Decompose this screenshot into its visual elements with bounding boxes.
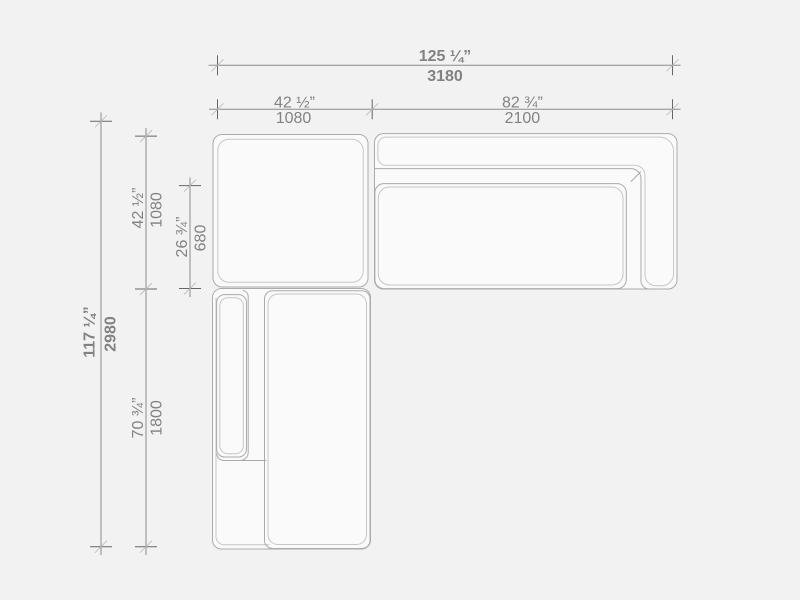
- svg-text:1080: 1080: [276, 110, 312, 127]
- svg-text:1080: 1080: [149, 192, 166, 228]
- svg-text:117 ¼”: 117 ¼”: [82, 306, 99, 358]
- svg-text:2100: 2100: [505, 110, 541, 127]
- svg-text:680: 680: [193, 225, 210, 252]
- svg-text:70 ¾”: 70 ¾”: [130, 398, 147, 439]
- svg-text:42 ½”: 42 ½”: [130, 188, 147, 229]
- svg-text:125 ¼”: 125 ¼”: [419, 48, 471, 65]
- svg-text:2980: 2980: [103, 316, 120, 352]
- svg-text:1800: 1800: [149, 400, 166, 436]
- svg-text:82 ¾”: 82 ¾”: [502, 95, 543, 112]
- svg-text:3180: 3180: [427, 68, 463, 85]
- svg-text:42 ½”: 42 ½”: [274, 95, 315, 112]
- svg-text:26 ¾”: 26 ¾”: [174, 217, 191, 258]
